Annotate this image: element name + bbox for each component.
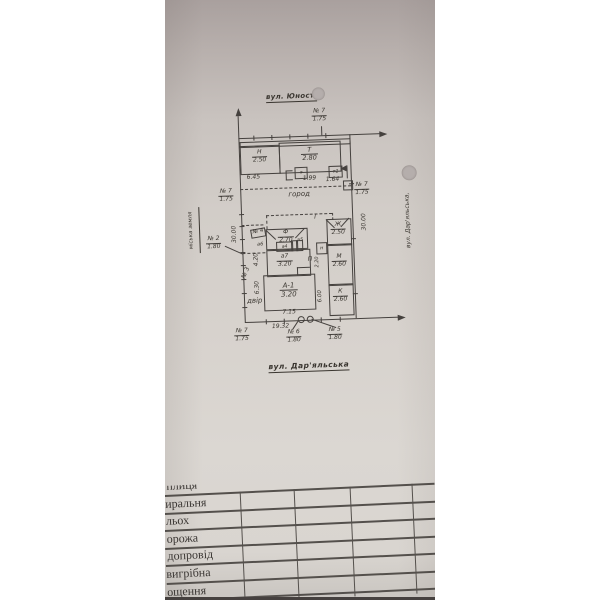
flag-pole [346, 165, 347, 178]
dim-645: 6.45 [247, 174, 261, 180]
marker-3: № 3 [241, 266, 251, 279]
table-row: вигрібна [166, 565, 211, 582]
marker-5: № 5 1.80 [327, 327, 343, 342]
dim-3000-right: 30.00 [361, 209, 368, 235]
site-plan: вул. Юності № 7 1.75 [180, 85, 435, 394]
table-row: допровід [167, 547, 213, 564]
building-k-label: К 2.60 [329, 288, 353, 304]
label-a6: а6 [257, 242, 263, 247]
dim-630: 6.30 [254, 277, 261, 297]
tick [239, 214, 244, 215]
flag-icon [340, 165, 346, 171]
shed-bracket-outline [286, 170, 293, 180]
tick [307, 134, 308, 139]
north-arrow-icon [235, 108, 241, 116]
dim-3000-left: 30.00 [231, 221, 238, 247]
redaction-dot-right [401, 165, 417, 181]
boundary-west-extension [238, 116, 240, 138]
tick [242, 307, 247, 308]
dashed-west-1 [241, 224, 263, 226]
tick [271, 135, 272, 140]
tick [266, 319, 267, 324]
label-p: П [308, 257, 313, 263]
tick [253, 136, 254, 141]
table-column-line [350, 487, 356, 597]
marker-7-top: № 7 1.75 [311, 108, 327, 123]
marker-7-right: № 7 1.75 [354, 182, 370, 197]
building-zh-label: Ж 2.50 [326, 221, 350, 237]
tick [289, 134, 290, 139]
tick [242, 293, 247, 294]
marker-7-top-tick [321, 126, 322, 135]
gate-circle-1 [298, 316, 305, 323]
marker-7-bottom: № 7 1.75 [234, 328, 250, 343]
city-land-label: міська земля [188, 207, 201, 253]
annex-a7-label: а7 3.20 [266, 253, 302, 269]
building-t-label: Т 2.80 [279, 146, 341, 164]
table-row: иральня [165, 495, 207, 512]
label-i: І [314, 215, 316, 221]
dashed-f-top [266, 213, 332, 216]
tick [240, 239, 245, 240]
dashed-f-left [266, 215, 267, 229]
clipped-row-label: плиця [166, 483, 226, 493]
dim-600: 6.00 [318, 287, 324, 305]
marker-6: № 6 1.80 [286, 329, 302, 344]
marker-7-left: № 7 1.75 [218, 188, 234, 203]
dim-420: 4.20 [253, 250, 260, 270]
shed-t1-label: т1 [332, 169, 338, 175]
dim-199: 1.99 [303, 175, 317, 181]
boundary-north-arrow-icon [379, 130, 387, 136]
dim-220: 2.20 [315, 254, 321, 270]
street-name-top: вул. Юності [266, 92, 317, 103]
table-line [165, 518, 435, 532]
label-a4: а4 [282, 244, 288, 249]
table-row: льох [166, 513, 190, 529]
document-photo: вул. Юності № 7 1.75 [165, 0, 435, 600]
dim-164: 1.64 [326, 177, 340, 183]
street-name-right: вул. Дар'яльська, [404, 188, 416, 252]
redaction-dot-top [312, 87, 325, 100]
table-column-line [294, 489, 300, 599]
boundary-south-arrow-icon [398, 314, 406, 320]
tick [239, 226, 244, 227]
yard-label: двір [247, 297, 263, 305]
marker-2: № 2 1.80 [206, 236, 222, 251]
tick [340, 317, 341, 322]
shed-n-outline: н [316, 242, 327, 254]
photo-canvas: вул. Юності № 7 1.75 [0, 0, 600, 600]
tick [325, 133, 326, 138]
boundary-north [238, 133, 381, 139]
building-n-label: Н 2.50 [240, 149, 279, 165]
table-row: орожа [166, 531, 198, 547]
street-name-bottom: вул. Дар'яльська [268, 360, 349, 372]
dim-715: 7.15 [282, 309, 296, 315]
building-a1-label: А-1 3.20 [263, 281, 314, 300]
building-m-label: М 2.60 [327, 253, 351, 269]
explication-table: плиця иральня льох орожа допровід вигріб… [165, 473, 435, 600]
garden-label: город [288, 191, 310, 199]
marker-4: № 4 [250, 227, 266, 238]
table-column-line [411, 484, 417, 594]
shed-n-label: н [320, 245, 323, 251]
